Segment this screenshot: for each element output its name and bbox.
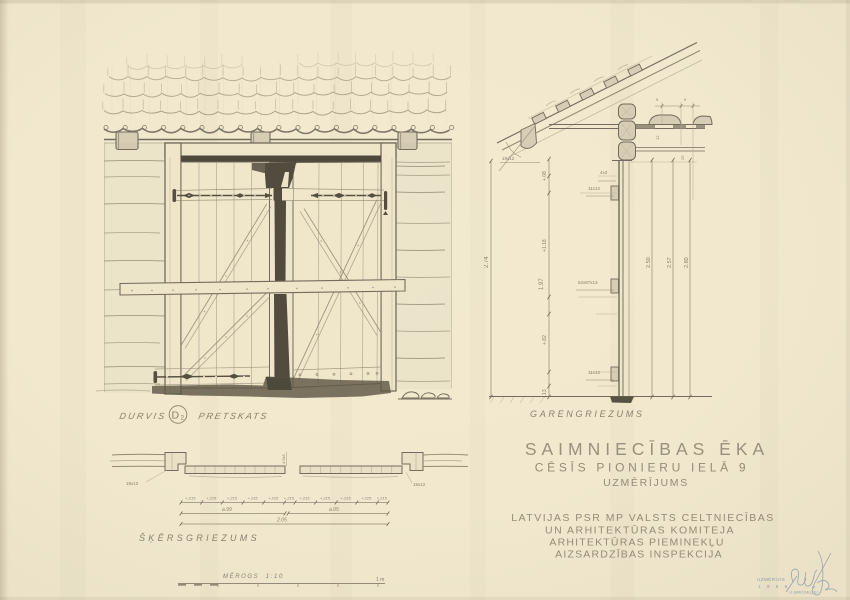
svg-text:1 9 6 8: 1 9 6 8 [758,584,790,589]
svg-text:2.74: 2.74 [484,256,490,268]
svg-text:+1.18: +1.18 [542,239,548,252]
svg-text:4.5x5: 4.5x5 [281,453,286,464]
svg-text:1 m: 1 m [376,577,384,583]
svg-text:UZMĒRĪJUMS: UZMĒRĪJUMS [603,477,689,489]
svg-text:DURVIS: DURVIS [119,411,168,421]
svg-text:1.97: 1.97 [539,278,545,290]
svg-text:+.215: +.215 [227,496,238,501]
svg-text:+.215: +.215 [284,496,295,501]
svg-text:+.215: +.215 [361,496,372,501]
svg-text:+.215: +.215 [185,496,196,501]
svg-text:2.57: 2.57 [667,257,673,268]
svg-text:SAIMNIECĪBAS ĒKA: SAIMNIECĪBAS ĒKA [525,439,769,459]
svg-text:+.215: +.215 [247,496,258,501]
svg-text:2.05: 2.05 [276,518,287,524]
svg-text:AIZSARDZĪBAS INSPEKCIJA: AIZSARDZĪBAS INSPEKCIJA [555,549,723,561]
svg-text:19x12: 19x12 [502,156,515,161]
svg-text:+.215: +.215 [377,496,388,501]
svg-text:PRETSKATS: PRETSKATS [198,411,270,421]
svg-text:GARENGRIEZUMS: GARENGRIEZUMS [530,409,645,419]
svg-text:+.215: +.215 [320,496,331,501]
svg-text:ŠĶĒRSGRIEZUMS: ŠĶĒRSGRIEZUMS [139,533,260,543]
svg-text:a.99: a.99 [222,507,232,513]
svg-text:11x13: 11x13 [588,186,600,191]
svg-text:+.215: +.215 [268,496,279,501]
svg-text:12: 12 [655,135,660,140]
svg-text:UZMĒRĪJIS: UZMĒRĪJIS [757,576,785,582]
svg-text:+.215: +.215 [341,496,352,501]
svg-text:a.05: a.05 [329,507,339,513]
svg-text:CĒSĪS PIONIERU IELĀ 9: CĒSĪS PIONIERU IELĀ 9 [535,461,749,475]
svg-text:+.215: +.215 [206,496,217,501]
svg-text:+.08: +.08 [542,171,548,181]
svg-text:62x87x13: 62x87x13 [578,280,598,285]
svg-text:UN ARHITEKTŪRAS KOMITEJA: UN ARHITEKTŪRAS KOMITEJA [545,525,735,537]
svg-text:MĒROGS 1:10: MĒROGS 1:10 [223,573,284,580]
svg-text:11x13: 11x13 [588,370,600,375]
svg-text:25: 25 [680,155,685,160]
svg-text:2.50: 2.50 [646,257,652,268]
svg-text:LATVIJAS PSR MP VALSTS CELTNIE: LATVIJAS PSR MP VALSTS CELTNIECĪBAS [511,512,775,524]
svg-text:4x3: 4x3 [600,170,608,175]
svg-text:/J.BRODELIS/: /J.BRODELIS/ [789,590,819,595]
svg-text:ARHITEKTŪRAS PIEMINEKĻU: ARHITEKTŪRAS PIEMINEKĻU [549,537,724,549]
svg-text:+.82: +.82 [542,335,548,345]
svg-text:19x12: 19x12 [413,482,426,487]
svg-text:2: 2 [181,415,185,422]
svg-text:19x12: 19x12 [126,481,139,486]
svg-text:2.80: 2.80 [684,257,690,268]
svg-text:+.215: +.215 [299,496,310,501]
svg-text:D: D [172,410,180,422]
